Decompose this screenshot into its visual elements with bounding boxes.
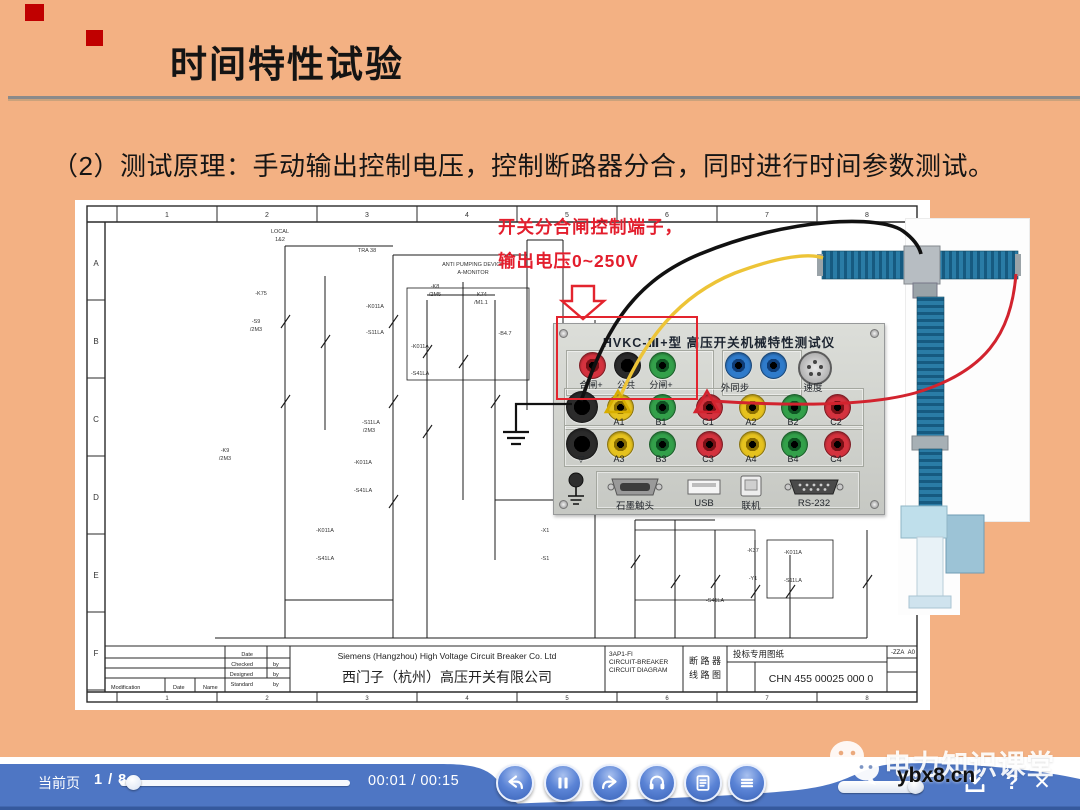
annotation-line1: 开关分合闸控制端子， — [498, 214, 683, 239]
schematic-text: -K011A — [354, 460, 372, 466]
menu-icon — [736, 772, 758, 794]
schematic-text: D — [93, 493, 99, 502]
schematic-text: 2 — [265, 212, 269, 219]
titleblock-doc-note: 投标专用图纸 — [733, 649, 785, 659]
schematic-text: /2M3 — [219, 456, 231, 462]
speed-label: 速度 — [803, 380, 822, 394]
schematic-text: 1 — [165, 212, 169, 219]
breaker-photo-area-lower — [898, 520, 960, 615]
schematic-text: F — [94, 649, 99, 658]
schematic-text: -S41LA — [316, 556, 335, 562]
graphite-contact-label: 石墨触头 — [616, 498, 654, 512]
schematic-text: -S41LA — [411, 371, 430, 377]
schematic-text: -S41LA — [706, 598, 725, 604]
schematic-text: C — [93, 415, 99, 424]
back-button[interactable] — [496, 764, 534, 802]
schematic-text: A — [93, 259, 99, 268]
screw-icon — [870, 500, 879, 509]
deco-square-2 — [86, 30, 103, 46]
schematic-text: -K011A — [784, 550, 802, 556]
presentation-player: 时间特性试验 （2）测试原理：手动输出控制电压，控制断路器分合，同时进行时间参数… — [0, 0, 1080, 810]
socket-label: B2 — [787, 417, 798, 427]
socket-ext-sync — [725, 352, 752, 379]
schematic-text: 8 — [865, 212, 869, 219]
rs232-port — [782, 476, 846, 498]
schematic-text: by — [273, 682, 279, 688]
schematic-text: by — [273, 672, 279, 678]
watermark-url: ybx8.cn — [897, 764, 975, 788]
title-underline — [8, 96, 1080, 101]
menu-button[interactable] — [728, 764, 766, 802]
schematic-text: ANTI PUMPING DEVICE — [442, 262, 504, 268]
schematic-text: B — [93, 337, 98, 346]
schematic-text: /2M5 — [429, 292, 441, 298]
socket-label: C2 — [830, 417, 842, 427]
ext-sync-label: 外同步 — [721, 380, 750, 394]
annotation-highlight-box — [556, 316, 698, 400]
online-port — [738, 474, 764, 498]
svg-text:CIRCUIT-BREAKER: CIRCUIT-BREAKER — [609, 659, 669, 666]
deco-square-1 — [25, 4, 44, 21]
schematic-text: Checked — [231, 662, 253, 668]
schematic-text: 6 — [665, 696, 669, 702]
socket-label: C4 — [830, 454, 842, 464]
schematic-text: LOCAL — [271, 229, 289, 235]
time-display: 00:01 / 00:15 — [368, 773, 459, 789]
schematic-text: -K75 — [255, 291, 267, 297]
notes-icon — [692, 772, 714, 794]
schematic-text: 3 — [365, 212, 369, 219]
schematic-text: -K74 — [475, 292, 487, 298]
schematic-text: 4 — [465, 696, 469, 702]
pause-icon — [552, 772, 574, 794]
svg-text:A0: A0 — [908, 650, 916, 656]
socket-label: A2 — [745, 417, 756, 427]
schematic-text: -S9 — [252, 319, 261, 325]
schematic-text: -S41LA — [354, 488, 373, 494]
schematic-text: Standard — [231, 682, 253, 688]
svg-text:断 路 器: 断 路 器 — [689, 655, 721, 666]
progress-slider[interactable] — [120, 780, 350, 786]
notes-button[interactable] — [684, 764, 722, 802]
schematic-text: -B4.7 — [498, 331, 511, 337]
schematic-text: 7 — [765, 696, 769, 702]
schematic-text: -K011A — [366, 304, 384, 310]
socket-label: C1 — [702, 417, 714, 427]
schematic-text: -S1 — [541, 556, 550, 562]
schematic-text: -Y1 — [749, 576, 758, 582]
schematic-text: -K8 — [431, 284, 440, 290]
schematic-text: -S11LA — [784, 578, 802, 584]
titleblock-model: 3AP1-FI — [609, 651, 633, 658]
schematic-text: -K011A — [411, 344, 429, 350]
watermark-wechat-icon — [828, 736, 882, 788]
schematic-text: 5 — [565, 696, 569, 702]
schematic-text: -K37 — [747, 548, 759, 554]
socket-label: B1 — [655, 417, 666, 427]
socket-label: B3 — [655, 454, 666, 464]
titleblock-company-en: Siemens (Hangzhou) High Voltage Circuit … — [338, 651, 557, 661]
schematic-text: -X1 — [541, 528, 550, 534]
svg-text:CIRCUIT DIAGRAM: CIRCUIT DIAGRAM — [609, 667, 667, 674]
annotation-line2: 输出电压0~250V — [498, 248, 639, 273]
schematic-text: 4 — [465, 212, 469, 219]
online-label: 联机 — [741, 498, 760, 512]
headset-button[interactable] — [638, 764, 676, 802]
socket-label: C3 — [702, 454, 714, 464]
schematic-text: 8 — [865, 696, 869, 702]
schematic-text: -K011A — [316, 528, 334, 534]
schematic-text: by — [273, 662, 279, 668]
usb-label: USB — [694, 498, 714, 509]
schematic-text: 7 — [765, 212, 769, 219]
schematic-text: 3 — [365, 696, 369, 702]
titleblock-company-cn: 西门子（杭州）高压开关有限公司 — [342, 669, 552, 685]
socket-label: ▽ — [578, 454, 585, 465]
schematic-text: /M1.1 — [474, 300, 488, 306]
ground-terminal-icon — [560, 470, 600, 510]
schematic-text: Designed — [230, 672, 253, 678]
schematic-text: Date — [173, 685, 185, 691]
schematic-text: TRA 38 — [358, 248, 376, 254]
socket-label: A4 — [745, 454, 756, 464]
headset-icon — [646, 772, 668, 794]
svg-text:线 路 图: 线 路 图 — [689, 669, 721, 680]
schematic-text: Name — [203, 685, 218, 691]
schematic-text: -S11LA — [366, 330, 384, 336]
socket-label: B4 — [787, 454, 798, 464]
back-icon — [504, 772, 526, 794]
schematic-text: /2M3 — [250, 327, 262, 333]
graphite-contact-port — [606, 476, 664, 498]
titleblock-doc-no: CHN 455 00025 000 0 — [769, 673, 874, 685]
current-page-label: 当前页 — [38, 773, 80, 793]
breaker-photo-area — [905, 218, 1030, 522]
forward-icon — [599, 772, 621, 794]
socket-ext-sync — [760, 352, 787, 379]
slide-title: 时间特性试验 — [170, 34, 404, 88]
socket-label: A1 — [613, 417, 624, 427]
schematic-text: A-MONITOR — [457, 270, 488, 276]
schematic-text: 1&2 — [275, 237, 285, 243]
schematic-text: 2 — [265, 696, 269, 702]
schematic-text: -K9 — [221, 448, 230, 454]
pause-button[interactable] — [544, 764, 582, 802]
svg-text:-ZZA: -ZZA — [891, 650, 904, 656]
schematic-text: E — [93, 571, 98, 580]
socket-label: A3 — [613, 454, 624, 464]
slide-body-text: （2）测试原理：手动输出控制电压，控制断路器分合，同时进行时间参数测试。 — [52, 146, 1042, 183]
forward-button[interactable] — [591, 764, 629, 802]
rs232-label: RS-232 — [798, 498, 830, 509]
schematic-text: Modification — [111, 685, 140, 691]
schematic-text: /2M3 — [363, 428, 375, 434]
progress-thumb[interactable] — [126, 775, 141, 790]
usb-port — [686, 477, 722, 497]
schematic-text: -S11LA — [362, 420, 380, 426]
screw-icon — [870, 329, 879, 338]
schematic-text: 1 — [165, 696, 169, 702]
schematic-text: Date — [241, 652, 253, 658]
